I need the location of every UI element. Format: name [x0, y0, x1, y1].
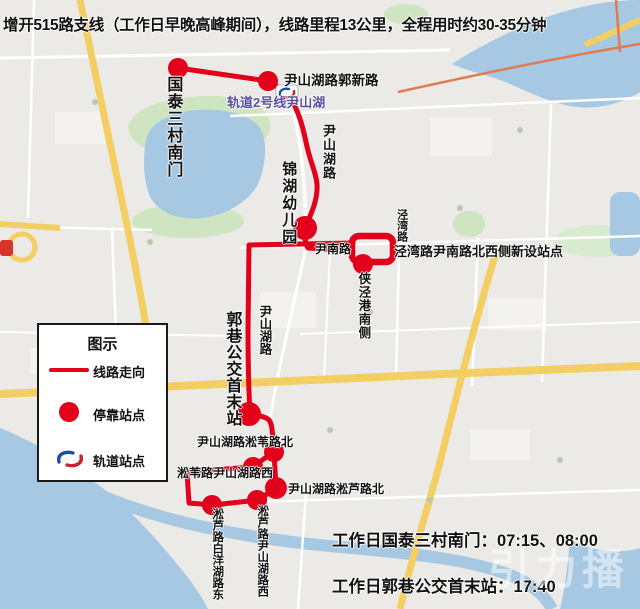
stop-label-jingwan-new: 泾湾路尹南路北西侧新设站点: [394, 245, 563, 260]
stop-label-guoxin: 尹山湖路郭新路: [284, 73, 379, 89]
legend-rail-label: 轨道站点: [93, 451, 145, 470]
route-announcement-title: 增开515路支线（工作日早晚高峰期间），线路里程13公里，全程用时约30-35分…: [3, 13, 639, 35]
street-label-yinnan: 尹南路: [315, 243, 351, 257]
bus-route-map: 增开515路支线（工作日早晚高峰期间），线路里程13公里，全程用时约30-35分…: [0, 0, 640, 609]
stop-label-songwei-west: 淞苇路尹山湖路西: [177, 467, 273, 481]
stop-label-songlu-north: 尹山湖路淞芦路北: [288, 483, 384, 497]
stop-label-baiyang-east: 淞芦路白洋湖路东: [210, 508, 223, 600]
legend-title: 图示: [39, 333, 166, 354]
watermark: 引力播: [488, 536, 629, 597]
street-label-yinshanhu-upper: 尹山湖路: [320, 124, 335, 180]
stop-dot: [237, 402, 261, 426]
stop-dot: [353, 254, 373, 274]
legend-stop-label: 停靠站点: [93, 405, 145, 424]
stop-label-jinhu: 锦湖幼儿园: [280, 161, 297, 246]
stop-label-guoxiang: 郭巷公交首末站: [222, 311, 240, 427]
stop-label-songlu-west: 淞芦路尹山湖路西: [255, 505, 268, 597]
legend-line-label: 线路走向: [93, 362, 145, 381]
stop-label-xiajinggang: 侠泾港南侧: [356, 272, 370, 340]
stop-label-songwei-north: 尹山湖路淞苇路北: [197, 436, 293, 450]
rail-transit-legend-icon: [53, 447, 87, 471]
stop-dot: [168, 58, 188, 78]
legend: 图示 线路走向 停靠站点 轨道站点: [37, 323, 168, 482]
route-layer: [0, 0, 640, 609]
route-line-icon: [49, 368, 89, 372]
street-label-yinshanhu-lower: 尹山湖路: [257, 305, 271, 355]
rail-station-label: 轨道2号线尹山湖: [227, 96, 325, 111]
street-label-jingwan: 泾湾路: [395, 209, 408, 242]
stop-dot-icon: [59, 402, 79, 422]
stop-dot: [258, 71, 278, 91]
stop-label-guotai: 国泰三村南门: [163, 76, 181, 178]
